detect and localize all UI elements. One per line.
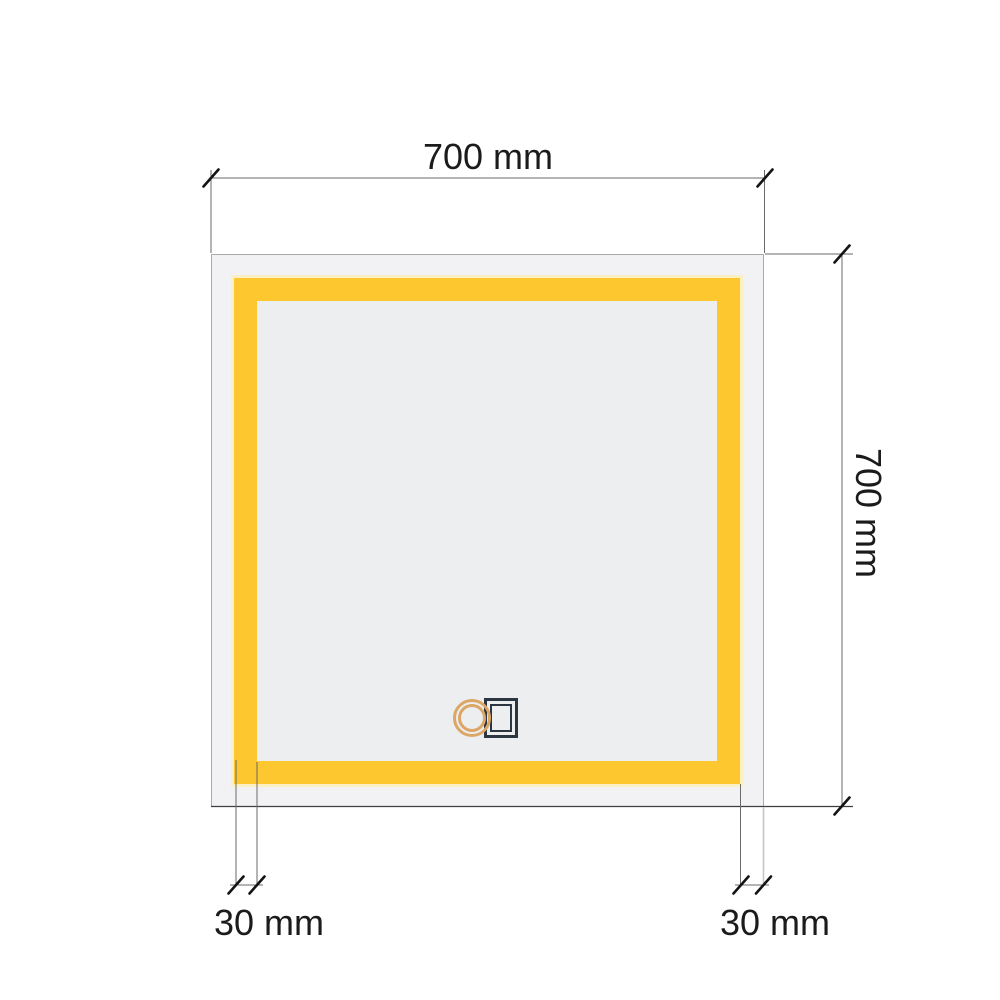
right-height-label: 700 mm <box>850 448 886 578</box>
sensor-touch-inner-ring-icon <box>458 704 486 732</box>
top-width-label: 700 mm <box>211 139 765 175</box>
sensor-switch-inner-square-icon <box>490 704 512 732</box>
bottom-right-offset-label: 30 mm <box>720 905 830 941</box>
bottom-left-offset-label: 30 mm <box>214 905 324 941</box>
dimension-diagram: 700 mm 700 mm 30 mm 30 mm <box>0 0 1000 1000</box>
